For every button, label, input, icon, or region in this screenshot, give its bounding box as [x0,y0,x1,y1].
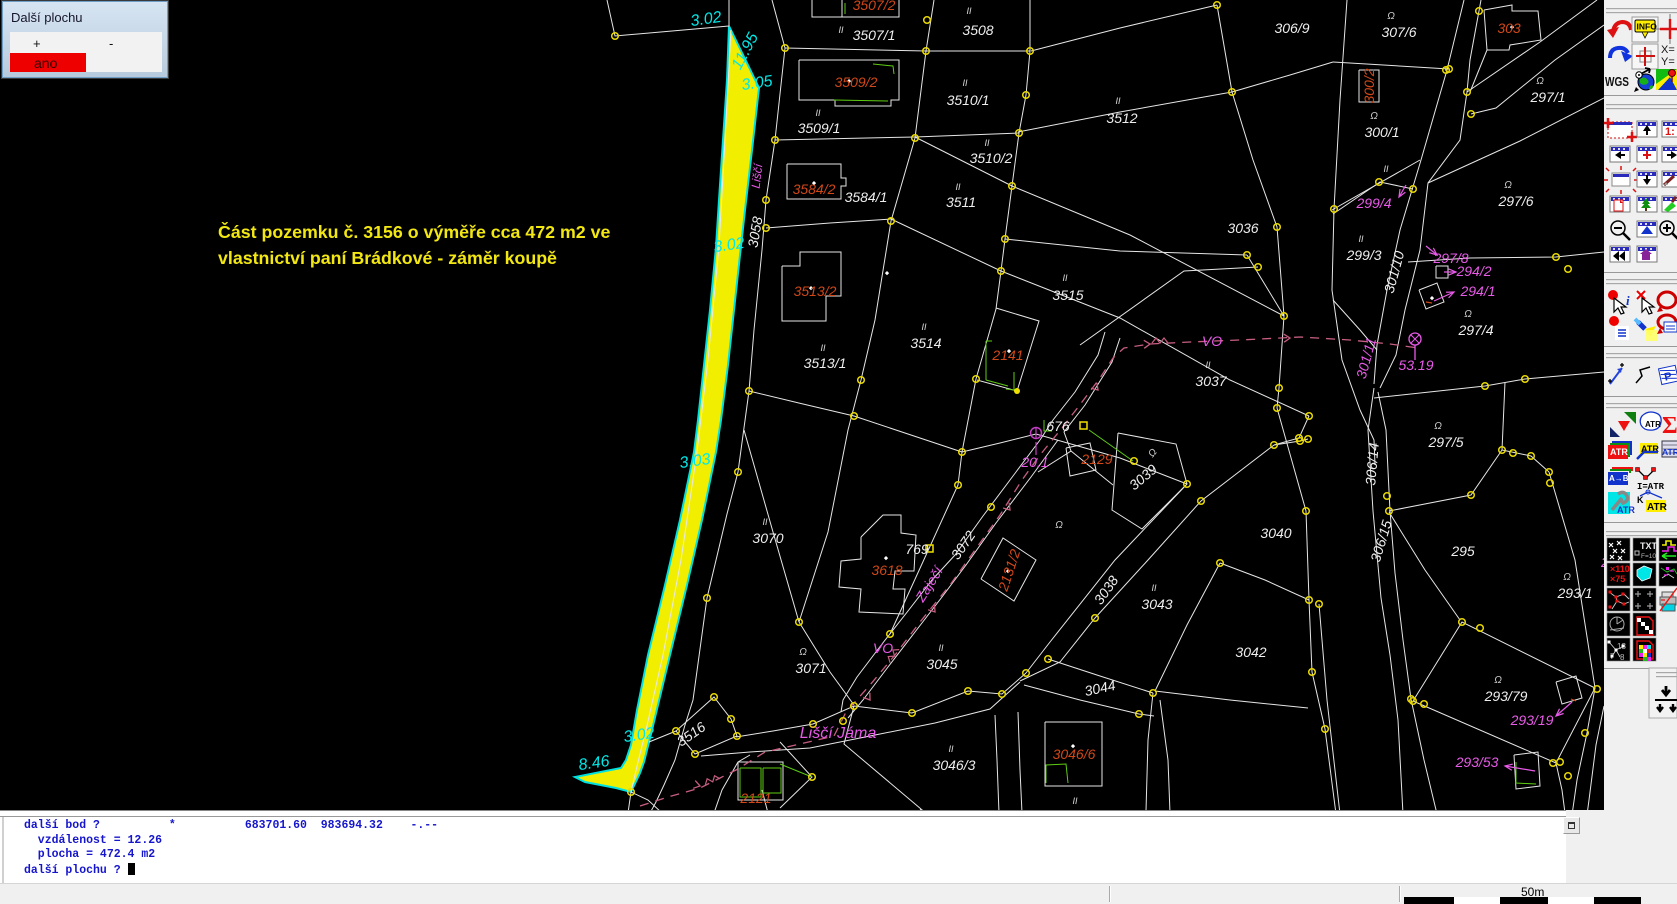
svg-text:Ω: Ω [1370,111,1378,122]
svg-text:3046/3: 3046/3 [933,757,976,773]
svg-text:II: II [962,78,968,88]
svg-text:676: 676 [1046,418,1070,434]
svg-text:II: II [984,138,990,148]
svg-text:TXT: TXT [1640,541,1658,551]
svg-text:ATR: ATR [1662,447,1677,457]
svg-text:2141: 2141 [991,347,1023,363]
svg-text:293/53: 293/53 [1455,754,1499,770]
svg-text:×75: ×75 [1610,574,1625,584]
svg-text:3513/2: 3513/2 [794,283,837,299]
svg-text:294/1: 294/1 [1459,283,1495,299]
svg-text:II: II [1205,360,1211,370]
svg-text:VO: VO [1202,333,1222,349]
svg-text:3512: 3512 [1106,110,1137,126]
svg-text:Liščí Jáma: Liščí Jáma [800,725,877,742]
svg-text:297/4: 297/4 [1457,322,1493,338]
svg-text:3515: 3515 [1052,287,1083,303]
svg-text:3513/1: 3513/1 [804,355,847,371]
svg-text:WGS: WGS [1605,74,1629,89]
svg-text:3514: 3514 [910,335,941,351]
svg-text:ATR: ATR [1617,505,1635,515]
svg-text:II: II [948,744,954,754]
svg-text:II: II [1115,96,1121,106]
svg-text:53.19: 53.19 [1398,357,1433,373]
svg-text:ATR: ATR [1645,420,1661,429]
svg-text:II: II [966,6,972,16]
svg-text:300/1: 300/1 [1364,124,1399,140]
svg-text:297/6: 297/6 [1497,193,1533,209]
svg-text:ATR: ATR [1610,447,1628,457]
svg-text:3043: 3043 [1141,596,1172,612]
svg-text:Ω: Ω [1563,572,1571,583]
svg-text:3037: 3037 [1195,373,1227,389]
svg-text:II: II [762,517,768,527]
svg-text:293/1: 293/1 [1556,585,1592,601]
svg-text:307/6: 307/6 [1381,24,1416,40]
svg-text:II: II [1062,273,1068,283]
svg-text:8: 8 [1620,653,1625,662]
svg-text:F=10: F=10 [1641,553,1656,560]
svg-text:II: II [1072,796,1078,806]
svg-text:3584/1: 3584/1 [845,189,888,205]
svg-text:INFO: INFO [1637,22,1658,32]
svg-text:II: II [921,322,927,332]
svg-text:3046/6: 3046/6 [1053,746,1096,762]
svg-text:297/1: 297/1 [1529,89,1565,105]
svg-text:II: II [1383,164,1389,174]
svg-text:299/4: 299/4 [1355,195,1391,211]
svg-text:3508: 3508 [962,22,993,38]
svg-text:300/2: 300/2 [1361,68,1377,103]
svg-text:Ω: Ω [1387,11,1395,22]
svg-text:×110: ×110 [1610,564,1630,574]
svg-text:3507/2: 3507/2 [853,0,896,13]
svg-text:vlastnictví paní Brádkové - zá: vlastnictví paní Brádkové - záměr koupě [218,248,557,268]
svg-text:X=: X= [1661,44,1675,56]
svg-text:Ω: Ω [1464,309,1472,320]
svg-text:2121: 2121 [739,790,771,806]
svg-text:293/79: 293/79 [1484,688,1528,704]
svg-text:II: II [815,108,821,118]
svg-text:20.1: 20.1 [1020,454,1048,470]
svg-text:769: 769 [905,541,929,557]
svg-text:A→B: A→B [1609,474,1629,483]
svg-text:i: i [1626,293,1630,308]
svg-text:II: II [1358,234,1364,244]
svg-text:II: II [938,643,944,653]
svg-text:I=ATR: I=ATR [1637,482,1665,492]
svg-text:3507/1: 3507/1 [853,27,896,43]
svg-text:II: II [820,343,826,353]
svg-text:3618: 3618 [871,562,902,578]
svg-text:II: II [955,182,961,192]
svg-text:Ω: Ω [799,647,807,658]
svg-text:3045: 3045 [926,656,957,672]
svg-text:3510/1: 3510/1 [947,92,990,108]
svg-text:Y=: Y= [1661,56,1675,68]
svg-text:Část pozemku č. 3156 o výměře: Část pozemku č. 3156 o výměře cca 472 m2… [218,221,611,242]
svg-text:306/9: 306/9 [1274,20,1309,36]
svg-text:Ω: Ω [1055,520,1063,531]
svg-text:Ω: Ω [1536,76,1544,87]
svg-text:2129: 2129 [1080,451,1112,467]
svg-text:303: 303 [1497,20,1521,36]
svg-text:Σ: Σ [1662,413,1677,439]
svg-text:K: K [1637,495,1644,505]
svg-text:3036: 3036 [1227,220,1258,236]
svg-text:295: 295 [1450,543,1475,559]
svg-text:II: II [838,25,844,35]
svg-text:3040: 3040 [1260,525,1291,541]
svg-text:3510/2: 3510/2 [970,150,1013,166]
svg-text:3509/2: 3509/2 [835,74,878,90]
svg-text:1:: 1: [1665,126,1675,138]
svg-text:3070: 3070 [752,530,783,546]
svg-text:293/19: 293/19 [1510,712,1554,728]
svg-text:3584/2: 3584/2 [793,181,836,197]
svg-text:294/2: 294/2 [1455,263,1491,279]
svg-text:297/5: 297/5 [1427,434,1463,450]
svg-text:3042: 3042 [1235,644,1266,660]
svg-text:ATR: ATR [1647,502,1668,513]
svg-text:3071: 3071 [795,660,826,676]
svg-text:Ω: Ω [1434,421,1442,432]
svg-text:3509/1: 3509/1 [798,120,841,136]
svg-text:VO: VO [873,640,893,656]
svg-text:3511: 3511 [946,194,976,210]
svg-text:Ω: Ω [1504,180,1512,191]
svg-text:299/3: 299/3 [1345,247,1381,263]
svg-text:Ω: Ω [1494,675,1502,686]
svg-text:II: II [1151,583,1157,593]
